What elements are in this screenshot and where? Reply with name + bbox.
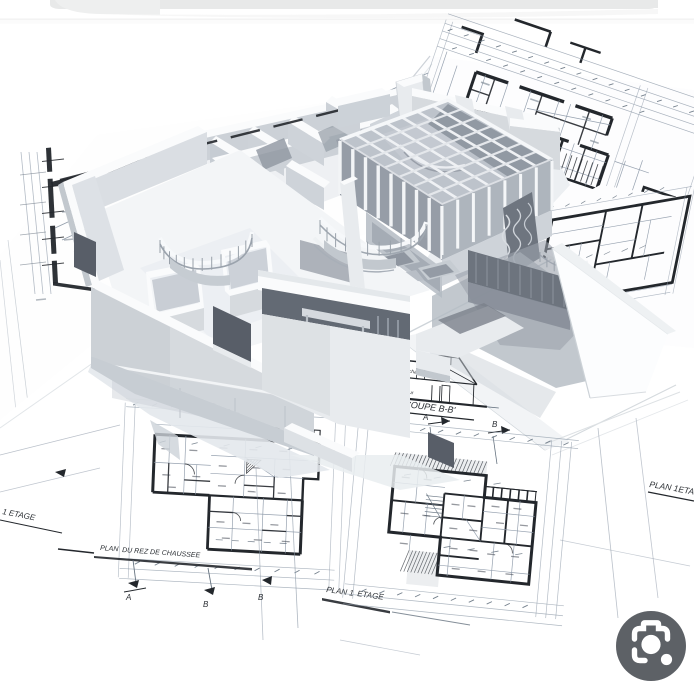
svg-text:PLAN: PLAN — [100, 545, 120, 553]
svg-text:A: A — [125, 593, 131, 602]
svg-text:A: A — [422, 413, 428, 422]
svg-text:B: B — [203, 600, 209, 609]
svg-text:B: B — [492, 420, 498, 429]
svg-text:B: B — [258, 593, 264, 602]
